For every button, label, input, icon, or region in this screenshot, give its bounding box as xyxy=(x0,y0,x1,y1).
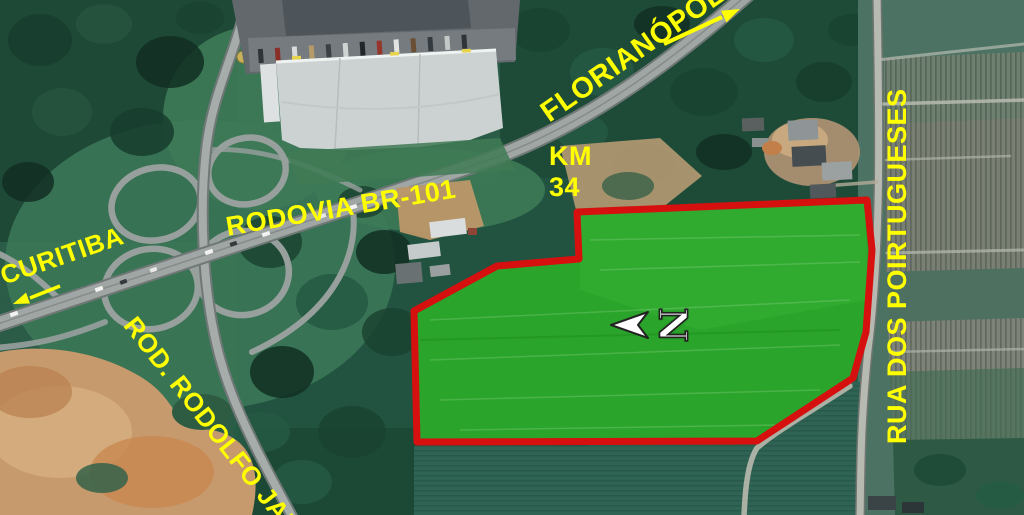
label-rua-dos-poirtugueses: RUA DOS POIRTUGUESES xyxy=(884,88,911,444)
north-arrow-icon xyxy=(610,311,650,339)
north-arrow-letter: N xyxy=(653,308,691,343)
north-arrow: N xyxy=(610,306,690,344)
label-km-34: KM 34 xyxy=(549,141,592,203)
annotated-satellite-map: FLORIANÓPOLIS CURITIBA RODOVIA BR-101 KM… xyxy=(0,0,1024,515)
label-km-line1: KM xyxy=(549,141,592,172)
label-km-line2: 34 xyxy=(549,172,592,203)
satellite-basemap xyxy=(0,0,1024,515)
